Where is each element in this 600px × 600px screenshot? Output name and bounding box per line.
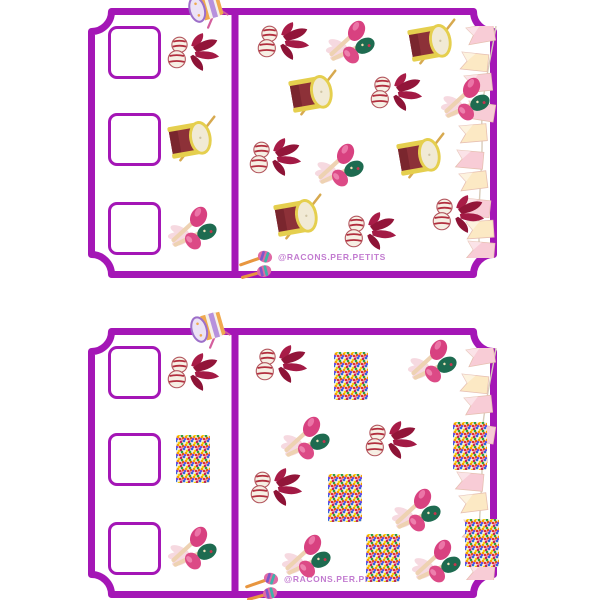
drum-icon	[164, 115, 222, 163]
confetti-icon	[465, 519, 499, 567]
carnival-mask-feathers-icon	[254, 344, 308, 384]
maracas-icon	[325, 19, 377, 65]
confetti-icon	[328, 474, 362, 522]
carnival-mask-feathers-icon	[431, 194, 485, 234]
carnival-mask-feathers-icon	[256, 21, 310, 61]
maracas-icon	[167, 205, 219, 251]
watermark-maracas-icon	[244, 566, 280, 600]
carnival-mask-feathers-icon	[343, 211, 397, 251]
answer-box[interactable]	[108, 202, 161, 255]
carnival-mask-feathers-icon	[249, 467, 303, 507]
maracas-icon	[280, 415, 332, 461]
carnival-mask-feathers-icon	[369, 72, 423, 112]
maracas-icon	[440, 76, 492, 122]
drum-icon	[404, 18, 462, 66]
answer-box[interactable]	[108, 433, 161, 486]
toy-drum-icon	[183, 0, 235, 30]
maracas-icon	[167, 525, 219, 571]
answer-box[interactable]	[108, 113, 161, 166]
drum-icon	[285, 69, 343, 117]
answer-box[interactable]	[108, 346, 161, 399]
maracas-icon	[411, 538, 463, 584]
carnival-mask-feathers-icon	[364, 420, 418, 460]
confetti-icon	[334, 352, 368, 400]
confetti-icon	[453, 422, 487, 470]
worksheet-page: @racons.per.petits @racons.per.petits	[0, 0, 600, 600]
maracas-icon	[407, 338, 459, 384]
answer-box[interactable]	[108, 26, 161, 79]
maracas-icon	[314, 142, 366, 188]
watermark-handle: @racons.per.petits	[278, 252, 386, 262]
confetti-icon	[176, 435, 210, 483]
toy-drum-icon	[185, 310, 237, 350]
carnival-mask-feathers-icon	[166, 32, 220, 72]
answer-box[interactable]	[108, 522, 161, 575]
ticket-card-1: @racons.per.petits	[88, 8, 497, 278]
carnival-mask-feathers-icon	[166, 352, 220, 392]
carnival-mask-feathers-icon	[248, 137, 302, 177]
confetti-icon	[366, 534, 400, 582]
watermark-maracas-icon	[238, 244, 274, 282]
ticket-card-2: @racons.per.petits	[88, 328, 497, 598]
maracas-icon	[391, 487, 443, 533]
drum-icon	[270, 193, 328, 241]
maracas-icon	[281, 533, 333, 579]
drum-icon	[393, 132, 451, 180]
